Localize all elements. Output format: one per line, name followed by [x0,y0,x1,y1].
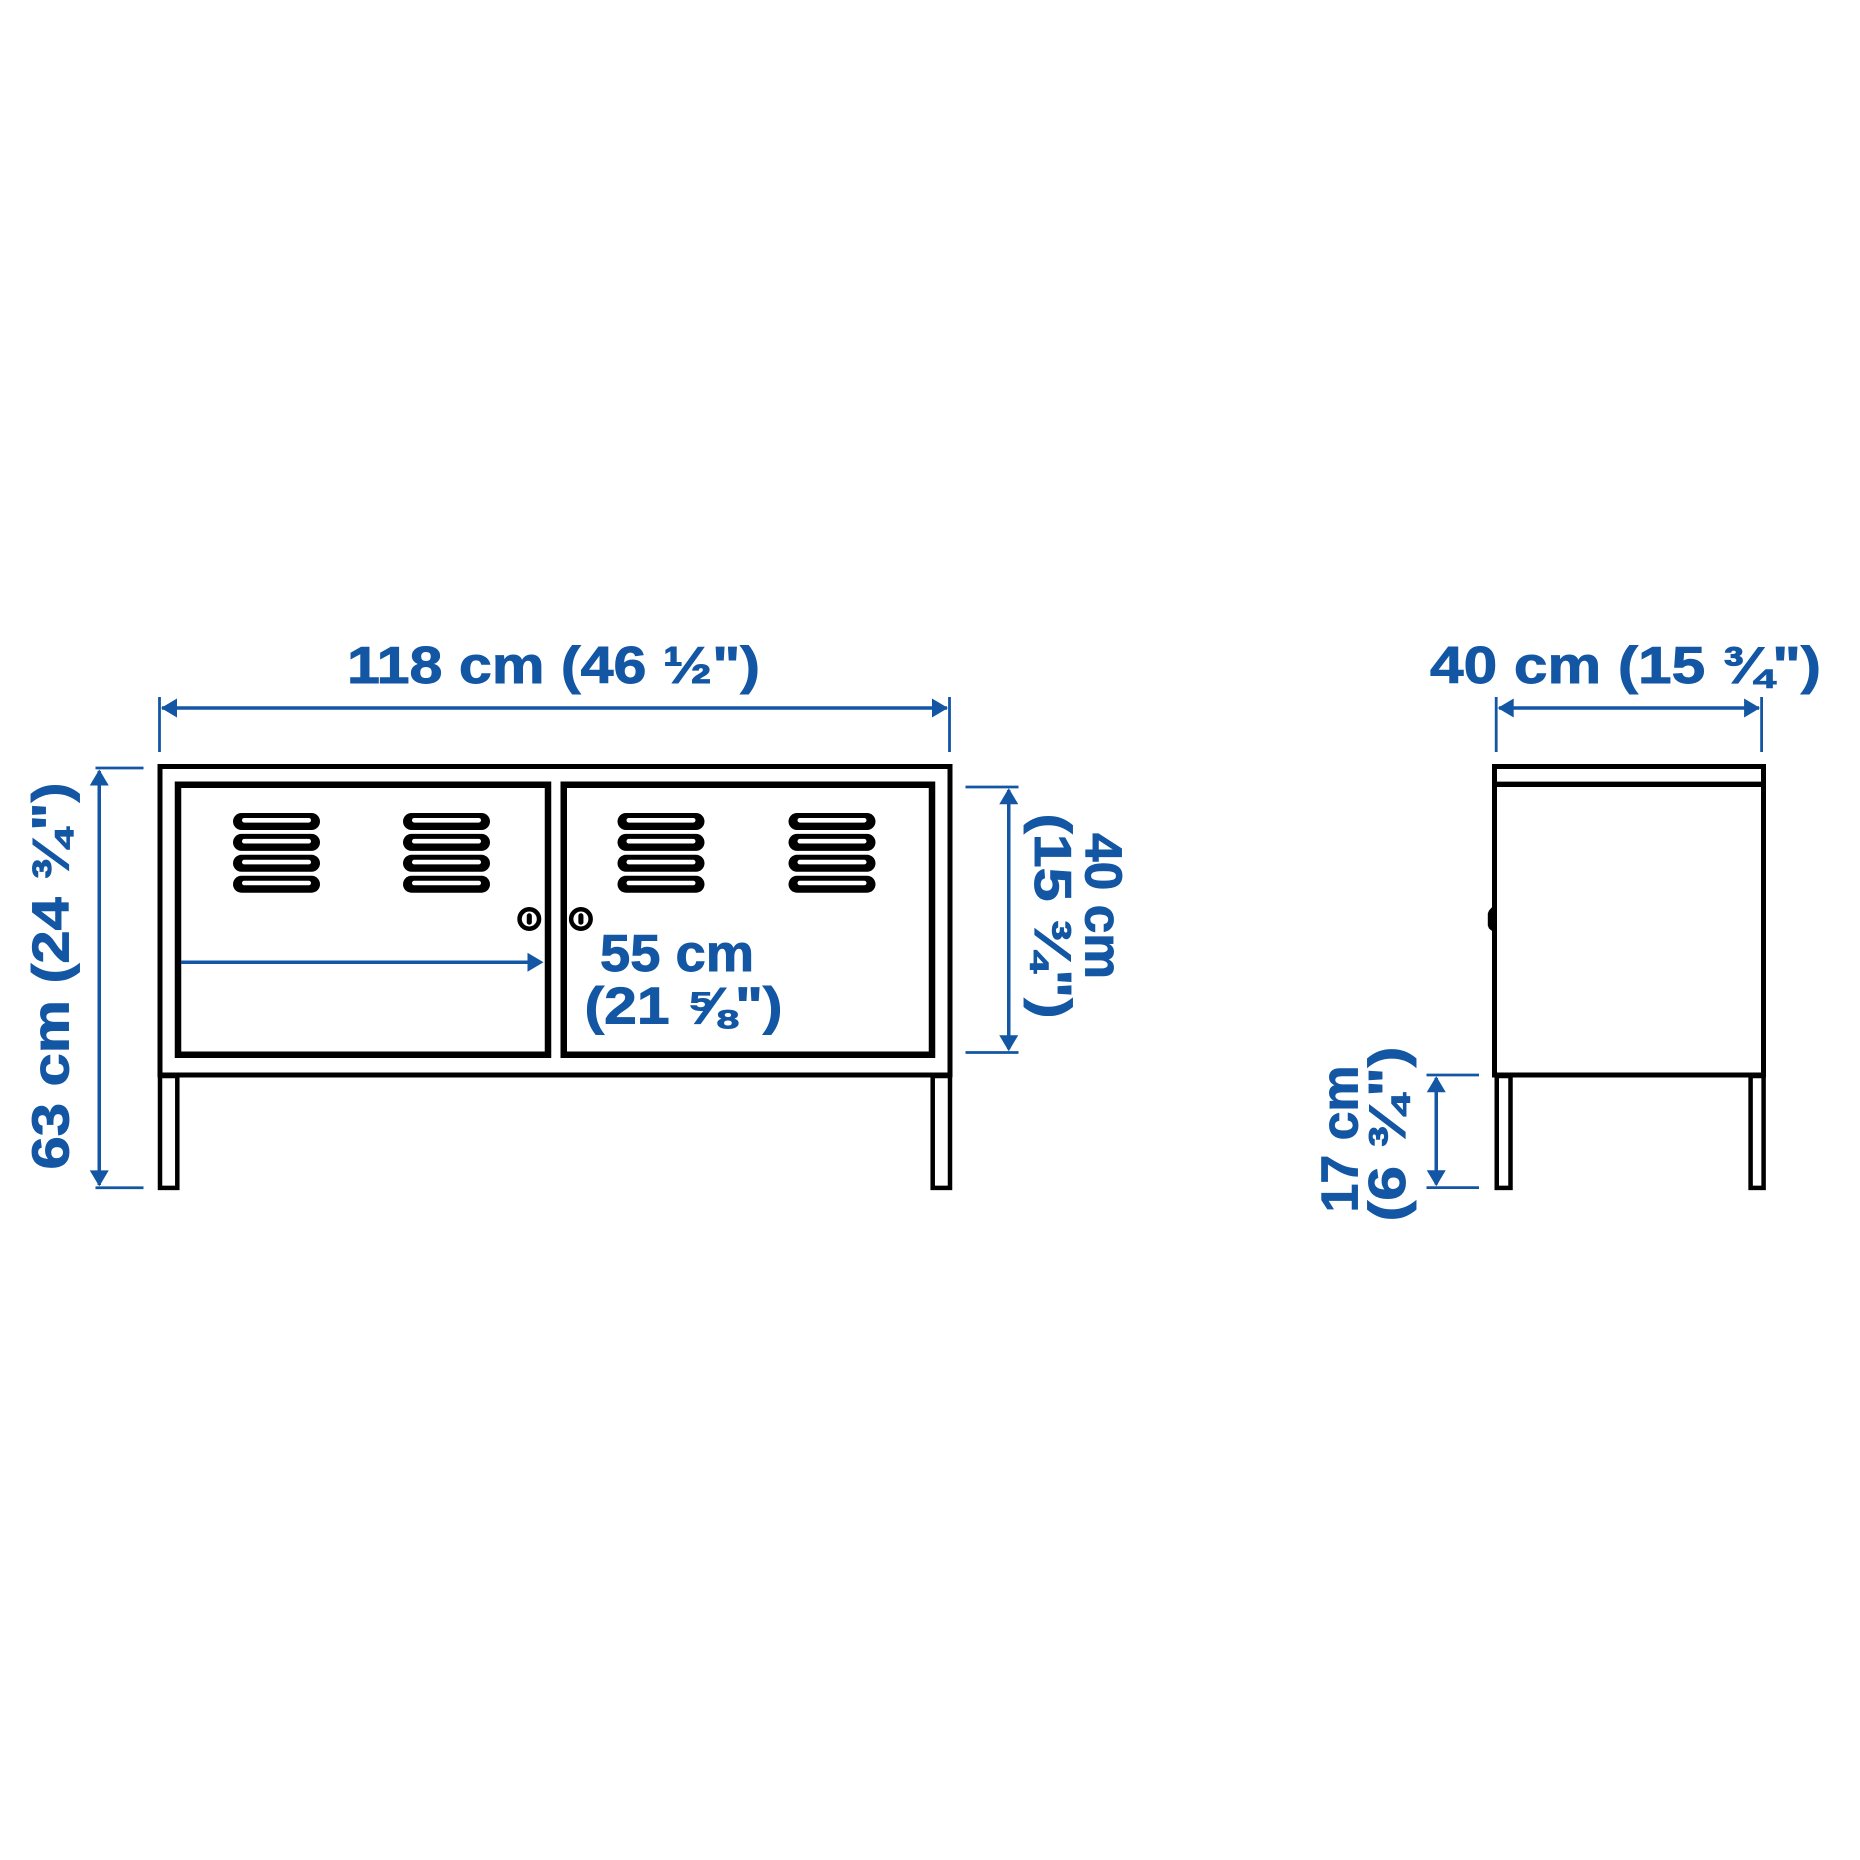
svg-text:40 cm: 40 cm [1074,833,1132,979]
svg-text:(6 ¾"): (6 ¾") [1359,1047,1417,1222]
svg-text:118 cm (46 ½"): 118 cm (46 ½") [347,637,760,695]
svg-text:40 cm (15 ¾"): 40 cm (15 ¾") [1430,637,1821,695]
svg-text:(15 ¾"): (15 ¾") [1023,814,1081,1019]
svg-text:63 cm (24 ¾"): 63 cm (24 ¾") [23,783,81,1170]
svg-text:55 cm: 55 cm [600,925,754,983]
svg-text:(21 ⅝"): (21 ⅝") [585,978,783,1036]
